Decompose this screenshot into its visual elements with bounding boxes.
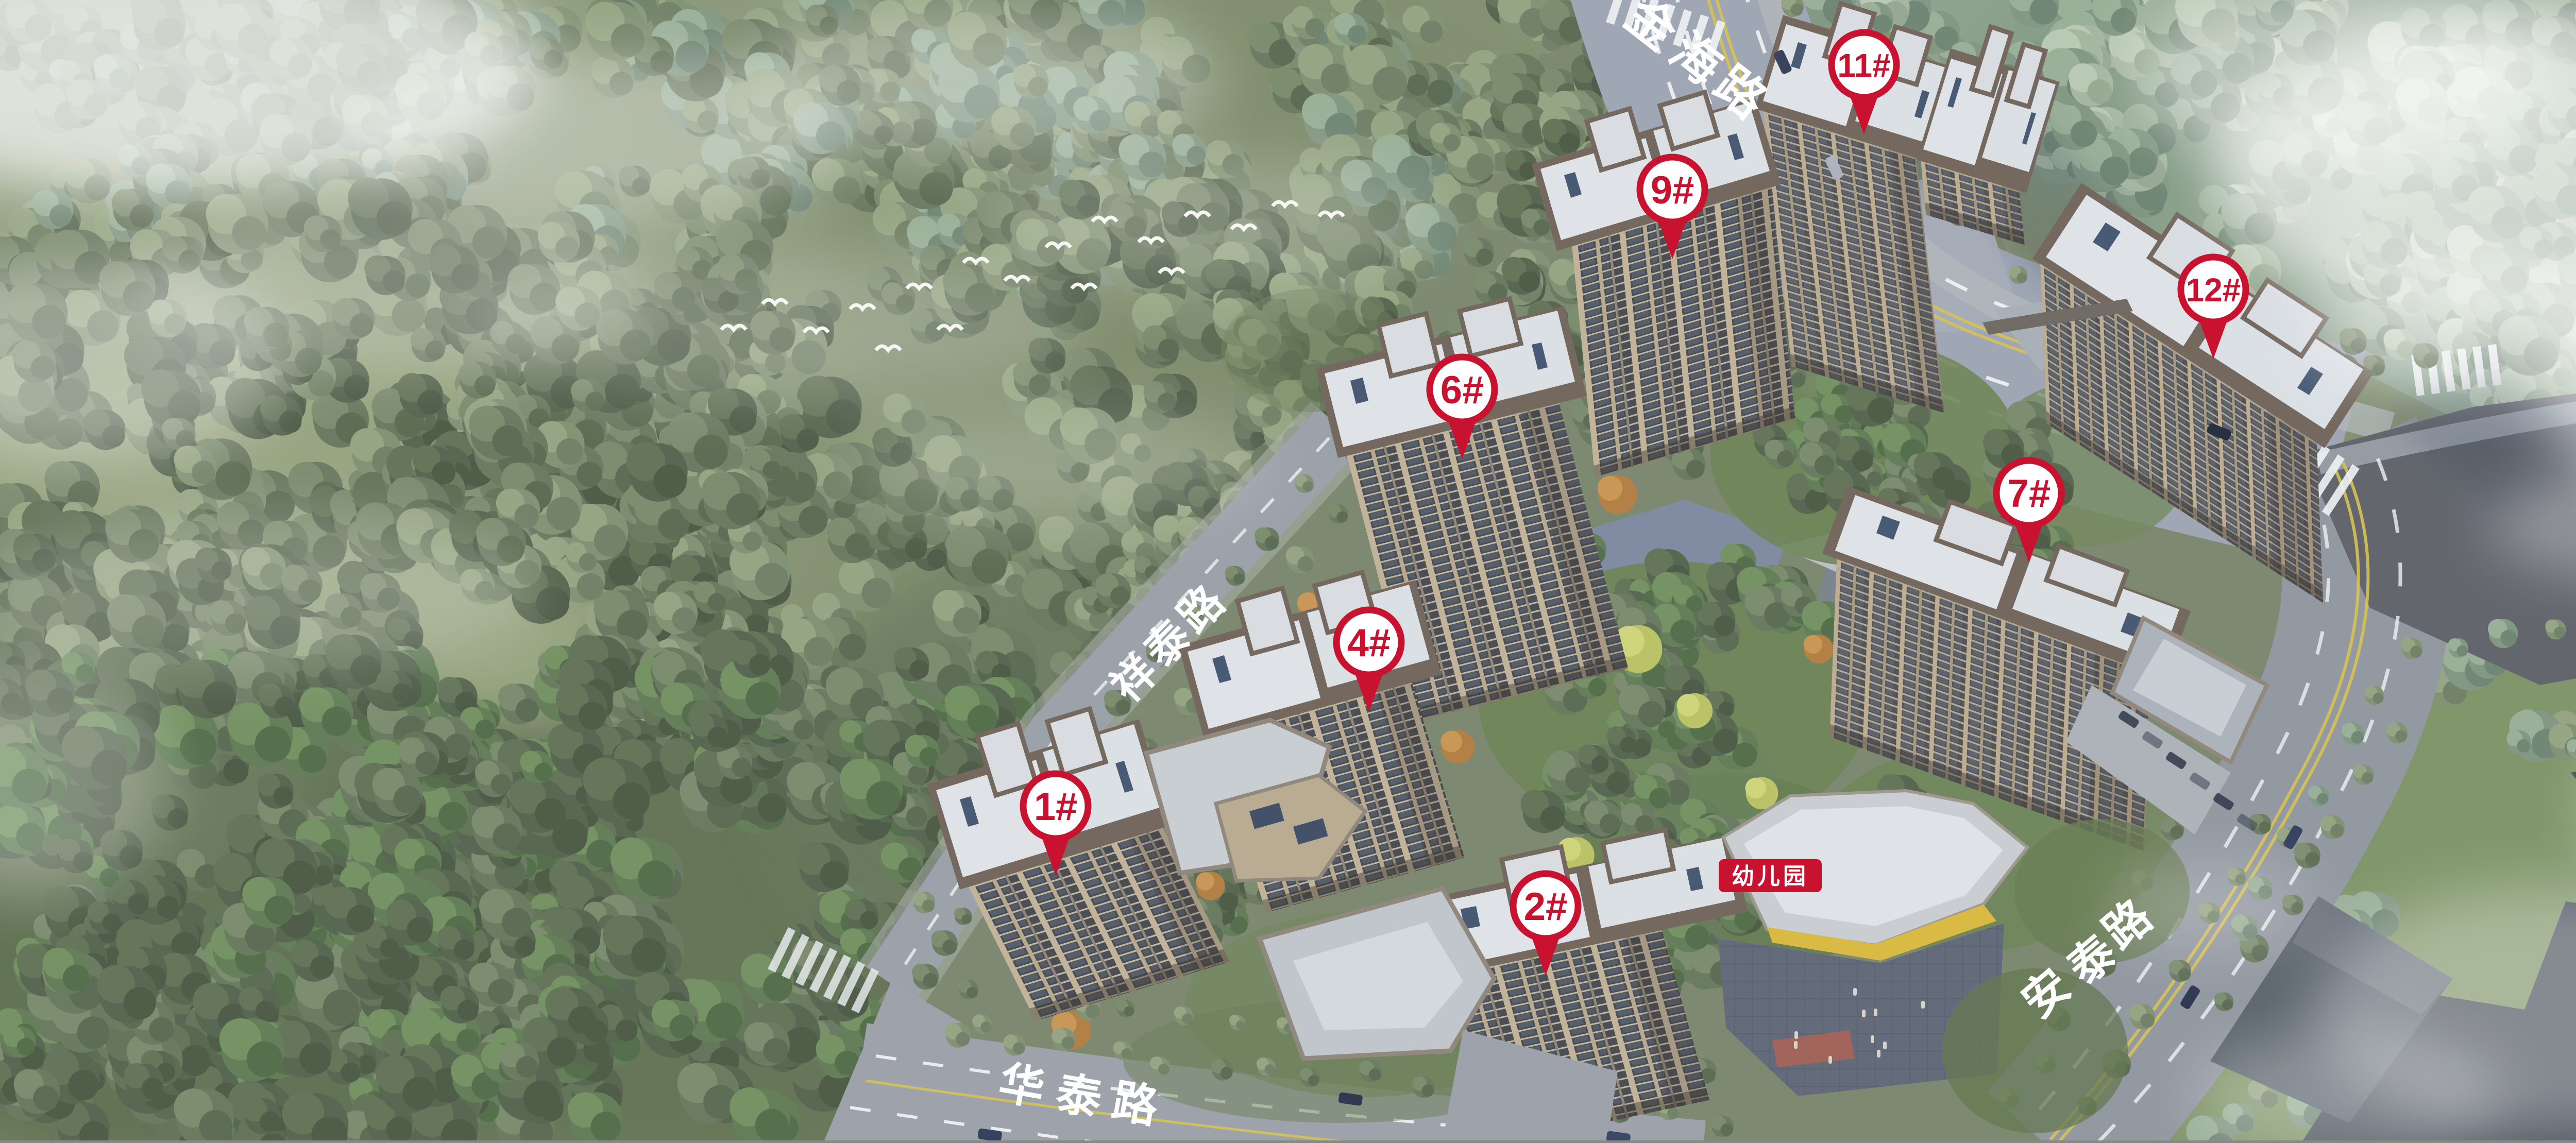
svg-text:路: 路	[1108, 1075, 1162, 1133]
svg-text:幼儿园: 幼儿园	[1732, 864, 1809, 889]
svg-text:11#: 11#	[1837, 47, 1890, 84]
svg-text:泰: 泰	[1052, 1067, 1106, 1125]
svg-text:9#: 9#	[1651, 168, 1694, 212]
svg-text:4#: 4#	[1347, 621, 1391, 665]
svg-text:1#: 1#	[1034, 785, 1078, 829]
svg-text:12#: 12#	[2186, 271, 2241, 309]
svg-text:6#: 6#	[1440, 368, 1484, 412]
svg-text:7#: 7#	[2007, 472, 2051, 516]
svg-text:华: 华	[995, 1057, 1048, 1115]
svg-text:2#: 2#	[1524, 885, 1568, 929]
